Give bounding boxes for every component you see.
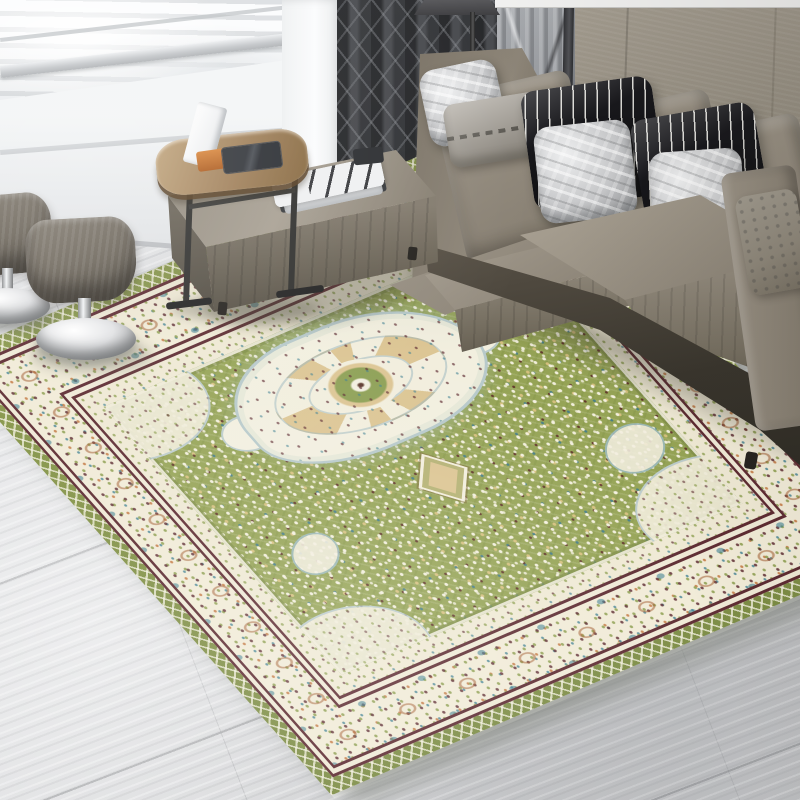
silver-crinkle-pillow xyxy=(532,118,639,225)
stool-chrome-base xyxy=(36,318,136,360)
chaise-foot xyxy=(217,302,227,316)
rug-field-motif xyxy=(282,524,350,584)
rug-corner-motif xyxy=(253,586,463,675)
chaise-foot xyxy=(407,247,417,261)
magazine-clasp xyxy=(353,146,385,165)
living-room-photo xyxy=(0,0,800,800)
rug-medallion-pendant xyxy=(419,454,468,502)
floor-lamp-shade xyxy=(414,0,500,15)
stool-seat xyxy=(24,215,138,305)
ceiling-strip xyxy=(495,0,800,8)
